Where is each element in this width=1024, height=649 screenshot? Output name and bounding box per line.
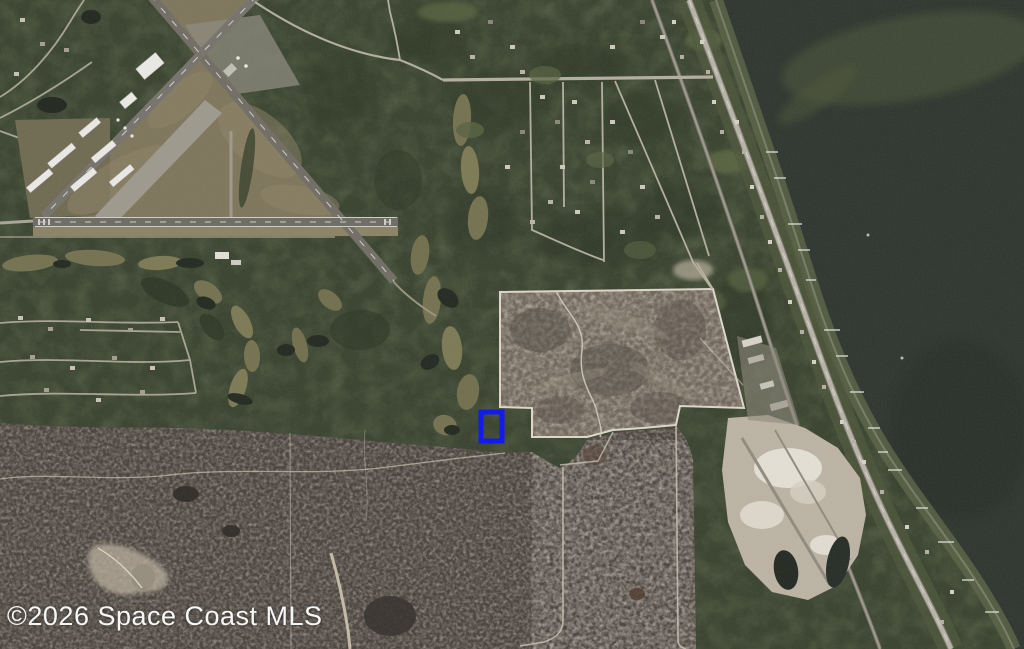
satellite-map-image[interactable]: ©2026 Space Coast MLS	[0, 0, 1024, 649]
mls-watermark: ©2026 Space Coast MLS	[7, 601, 323, 632]
aerial-imagery	[0, 0, 1024, 649]
photo-grain-overlay	[0, 0, 1024, 649]
